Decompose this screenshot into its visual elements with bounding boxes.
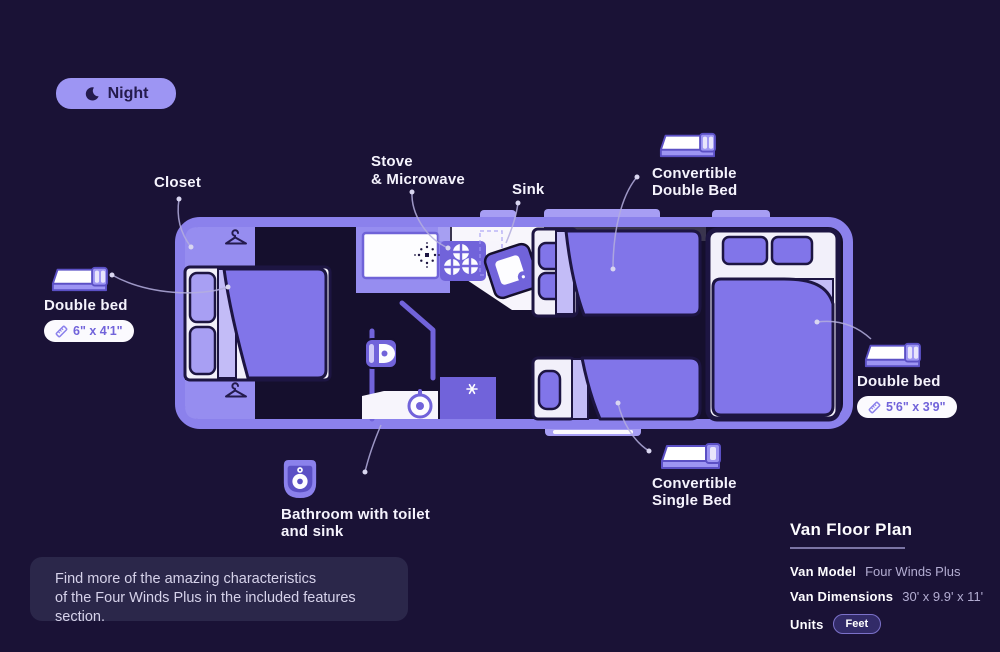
moon-icon xyxy=(84,86,100,102)
van-info-panel: Van Floor Plan Van Model Four Winds Plus… xyxy=(790,520,996,634)
bed-dimensions-pill: 5'6" x 3'9" xyxy=(857,396,957,418)
ruler-icon xyxy=(55,325,68,338)
pillow xyxy=(772,237,812,264)
blanket xyxy=(713,279,833,415)
front-double-bed xyxy=(185,267,330,380)
bed-icon xyxy=(652,131,722,159)
van-floorplan-screen: Night xyxy=(0,0,1000,652)
pillow xyxy=(723,237,767,264)
rear-double-bed-callout: Double bed 5'6" x 3'9" xyxy=(857,341,957,418)
van-floorplan-diagram xyxy=(172,200,856,448)
bed-icon xyxy=(44,265,114,293)
closet-label: Closet xyxy=(154,174,201,192)
stove-microwave-label: Stove & Microwave xyxy=(371,153,465,188)
night-toggle[interactable]: Night xyxy=(56,78,176,109)
units-badge[interactable]: Feet xyxy=(833,614,882,634)
closet-top xyxy=(185,227,255,268)
closet-bottom xyxy=(185,380,255,419)
pillow xyxy=(190,327,215,374)
bed-dimensions-pill: 6" x 4'1" xyxy=(44,320,134,342)
panel-title: Van Floor Plan xyxy=(790,520,996,540)
panel-title-underline xyxy=(790,547,905,549)
info-note-line2: of the Four Winds Plus in the included f… xyxy=(55,589,390,627)
toilet-icon xyxy=(281,458,319,502)
shower-unit xyxy=(440,377,496,419)
van-dimensions-row: Van Dimensions 30' x 9.9' x 11' xyxy=(790,589,996,604)
convertible-single-callout: Convertible Single Bed xyxy=(652,441,737,509)
bed-icon xyxy=(857,341,927,369)
entry-step-tread xyxy=(553,430,633,434)
bed-icon xyxy=(652,441,728,471)
units-row: Units Feet xyxy=(790,614,996,634)
blanket xyxy=(582,358,700,419)
bathroom-callout: Bathroom with toilet and sink xyxy=(281,458,430,540)
stove-burner xyxy=(444,259,460,275)
night-toggle-label: Night xyxy=(108,85,149,103)
blanket xyxy=(566,231,700,315)
rear-double-bed xyxy=(708,230,838,419)
stove-burner xyxy=(462,258,478,274)
info-note-line1: Find more of the amazing characteristics xyxy=(55,570,390,589)
van-model-row: Van Model Four Winds Plus xyxy=(790,564,996,579)
ruler-icon xyxy=(868,401,881,414)
info-note: Find more of the amazing characteristics… xyxy=(30,557,408,621)
convertible-double-bed xyxy=(533,229,700,316)
stove-burner xyxy=(453,244,469,260)
front-double-bed-callout: Double bed 6" x 4'1" xyxy=(44,265,134,342)
pillow xyxy=(539,371,560,409)
toilet-icon xyxy=(365,339,397,368)
convertible-single-bed xyxy=(533,358,700,419)
sink-label: Sink xyxy=(512,181,544,199)
pillow xyxy=(190,273,215,322)
convertible-double-callout: Convertible Double Bed xyxy=(652,131,737,199)
